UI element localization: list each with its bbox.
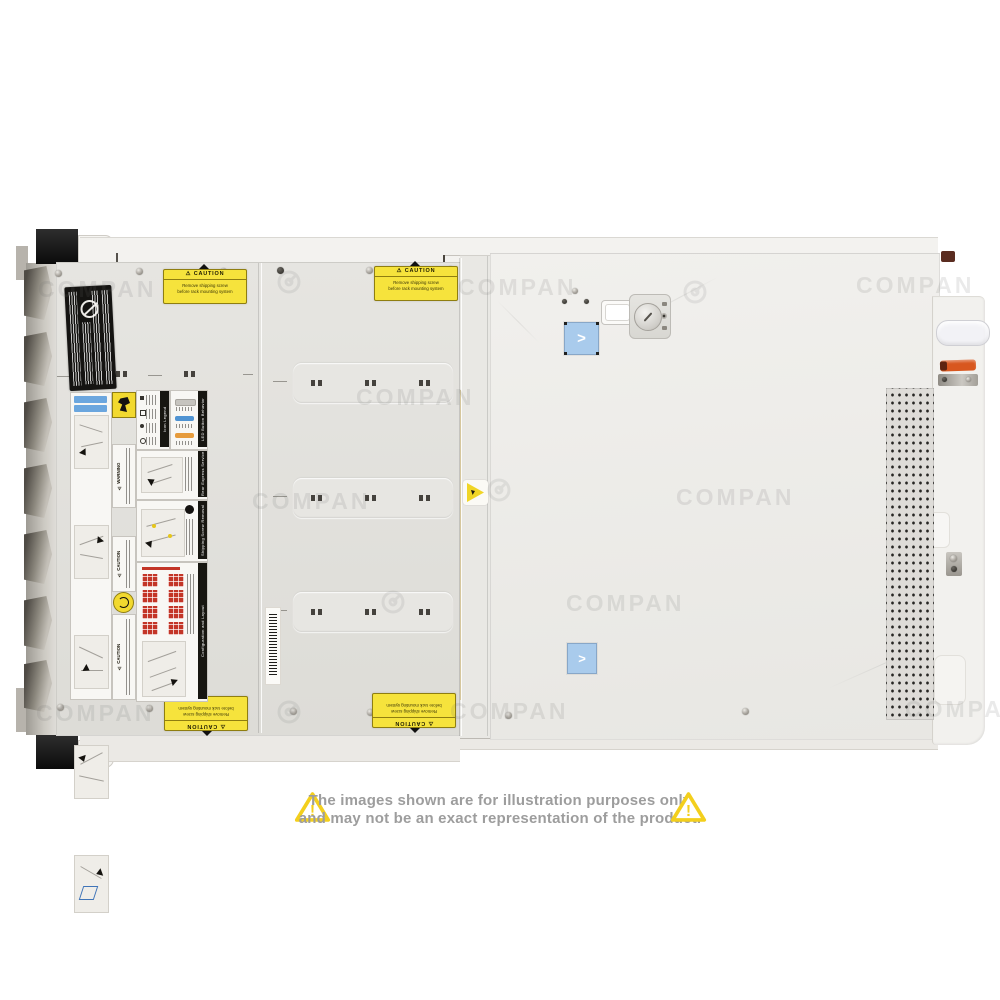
rear-express-service-tag-title: Rear Express Service Tag bbox=[198, 451, 207, 497]
drive-map-grid bbox=[168, 622, 184, 635]
microtext bbox=[146, 395, 156, 405]
microtext bbox=[186, 519, 193, 555]
microtext bbox=[176, 407, 193, 411]
caution-label-line2: before rack mounting system bbox=[164, 289, 246, 295]
rear-express-service-tag-label: Rear Express Service Tag bbox=[136, 450, 208, 500]
rivet bbox=[584, 299, 589, 304]
product-photo: ⚠ CAUTION Remove shipping screw before r… bbox=[0, 0, 1000, 1000]
icon-legend-title: Icon Legend bbox=[160, 391, 169, 447]
caution-label-heading: ⚠ CAUTION bbox=[373, 717, 455, 727]
icon-legend-label: Icon Legend bbox=[136, 390, 170, 450]
rotation-warning-sticker bbox=[113, 592, 134, 613]
label-title-chip bbox=[74, 396, 107, 403]
cover-seam-highlight bbox=[461, 258, 462, 736]
screw bbox=[277, 267, 284, 274]
step-diagram bbox=[74, 745, 109, 799]
step-diagram bbox=[74, 855, 109, 913]
warning-triangle-sticker bbox=[463, 480, 488, 505]
caution-label-line2: before rack mounting system bbox=[373, 702, 455, 708]
step-diagram bbox=[74, 415, 109, 469]
warning-text: ⚠ WARNING bbox=[114, 447, 124, 505]
label-arrow-icon bbox=[202, 731, 212, 736]
padlock-unlocked-icon bbox=[662, 302, 667, 306]
rivet bbox=[562, 299, 567, 304]
screw bbox=[366, 267, 373, 274]
clear-pull-handle bbox=[936, 320, 990, 346]
led-blue-pill bbox=[175, 416, 194, 421]
regulatory-microtext bbox=[102, 290, 114, 384]
cover-recess bbox=[293, 478, 453, 518]
microtext bbox=[126, 540, 132, 588]
vent-slot-pair bbox=[311, 380, 322, 386]
disclaimer-warning-triangle-icon: ! bbox=[670, 790, 707, 824]
disclaimer-line1: The images shown are for illustration pu… bbox=[0, 792, 1000, 810]
cover-recess bbox=[293, 592, 453, 632]
led-amber-pill bbox=[175, 433, 194, 438]
vent-slot-pair bbox=[365, 609, 376, 615]
led-off-pill bbox=[175, 399, 196, 406]
metal-bracket bbox=[938, 374, 978, 386]
warning-triangle-icon bbox=[467, 483, 484, 502]
vent-slot-pair bbox=[116, 371, 127, 377]
panel-tick bbox=[273, 496, 287, 497]
disclaimer-text: The images shown are for illustration pu… bbox=[0, 792, 1000, 828]
step-diagram bbox=[74, 525, 109, 579]
cover-seam-highlight bbox=[261, 263, 262, 733]
vent-slot-pair bbox=[184, 371, 195, 377]
regulatory-microtext bbox=[69, 292, 82, 386]
rail-instructions-label bbox=[70, 392, 112, 700]
drive-map-grid bbox=[168, 590, 184, 603]
panel-tick bbox=[148, 375, 162, 376]
caution-label-line1: Remove shipping screw bbox=[373, 708, 455, 714]
microtext bbox=[126, 619, 132, 695]
vent-slot-pair bbox=[311, 609, 322, 615]
caution-label-line2: before rack mounting system bbox=[375, 286, 457, 292]
vent-slot-pair bbox=[419, 609, 430, 615]
vent-slot-pair bbox=[311, 495, 322, 501]
chassis-bottom-wall-left bbox=[80, 734, 460, 762]
rivet bbox=[572, 288, 578, 294]
shipping-screw-removal-title: Shipping Screw Removal bbox=[198, 501, 207, 559]
exclamation-glyph: ! bbox=[686, 803, 691, 820]
caution-label-group: ⚠ CAUTION Remove shipping screw before r… bbox=[163, 269, 245, 302]
drive-map-grid bbox=[168, 574, 184, 587]
microtext bbox=[146, 423, 156, 433]
microtext bbox=[146, 437, 156, 445]
screw bbox=[742, 708, 749, 715]
screw bbox=[290, 708, 297, 715]
step-number-badge bbox=[185, 505, 194, 514]
regulatory-label bbox=[64, 285, 116, 391]
label-title-chip bbox=[74, 405, 107, 412]
panel-tick bbox=[273, 381, 287, 382]
config-header-mark bbox=[142, 567, 180, 570]
keyslot-icon bbox=[644, 312, 653, 322]
warning-strip: ⚠ WARNING ⚠ CAUTION ⚠ CAUTION bbox=[112, 392, 134, 698]
caution-label-group: ⚠ CAUTION Remove shipping screw before r… bbox=[374, 266, 456, 299]
caution-label: ⚠ CAUTION Remove shipping screw before r… bbox=[163, 269, 247, 304]
microtext bbox=[176, 424, 193, 428]
led-button-behavior-label: LED Button Behavior bbox=[170, 390, 208, 450]
caution-text: ⚠ CAUTION bbox=[114, 617, 124, 697]
chassis-iso-diagram bbox=[142, 641, 186, 697]
screw bbox=[136, 268, 143, 275]
drive-map-grid bbox=[142, 606, 158, 619]
led-button-behavior-title: LED Button Behavior bbox=[198, 391, 207, 447]
screw bbox=[55, 270, 62, 277]
flange-notch bbox=[934, 655, 966, 705]
latch-slider bbox=[605, 304, 630, 321]
configuration-and-layout-title: Configuration and Layout bbox=[198, 563, 207, 699]
orange-release-lever bbox=[940, 359, 976, 371]
cover-keylock bbox=[629, 294, 671, 339]
caution-label-heading: ⚠ CAUTION bbox=[164, 270, 246, 280]
caution-label-group: ⚠ CAUTION Remove shipping screw before r… bbox=[166, 698, 248, 731]
shipping-screw-removal-label: Shipping Screw Removal bbox=[136, 500, 208, 562]
caution-label: ⚠ CAUTION Remove shipping screw before r… bbox=[374, 266, 458, 301]
service-tag-diagram bbox=[141, 457, 183, 493]
microtext bbox=[176, 441, 193, 445]
screw bbox=[505, 712, 512, 719]
vent-slot-pair bbox=[365, 380, 376, 386]
cover-seam bbox=[258, 263, 259, 733]
drive-map-grid bbox=[142, 622, 158, 635]
caution-label: ⚠ CAUTION Remove shipping screw before r… bbox=[372, 693, 456, 728]
microtext bbox=[185, 457, 193, 491]
screw bbox=[57, 704, 64, 711]
caution-text-bar: ⚠ CAUTION bbox=[112, 536, 136, 592]
vent-slot-pair bbox=[419, 495, 430, 501]
chassis-top-wall-left bbox=[80, 237, 460, 265]
label-arrow-icon bbox=[199, 264, 209, 269]
caution-text-bar: ⚠ CAUTION bbox=[112, 614, 136, 700]
regulatory-microtext bbox=[82, 322, 93, 384]
padlock-locked-icon bbox=[662, 326, 667, 330]
legend-row-icon bbox=[140, 424, 144, 428]
chevron-right-icon: > bbox=[577, 330, 586, 347]
caution-label-heading: ⚠ CAUTION bbox=[375, 267, 457, 277]
drive-map-grid bbox=[142, 574, 158, 587]
keylock-detent bbox=[661, 313, 667, 319]
instruction-label-cluster: ⚠ WARNING ⚠ CAUTION ⚠ CAUTION Icon Legen… bbox=[68, 390, 208, 702]
chevron-right-icon: > bbox=[578, 651, 586, 666]
caution-label-group: ⚠ CAUTION Remove shipping screw before r… bbox=[374, 695, 456, 728]
cover-recess bbox=[293, 363, 453, 403]
caution-text: ⚠ CAUTION bbox=[114, 539, 124, 589]
label-arrow-icon bbox=[410, 261, 420, 266]
vent-slot-pair bbox=[365, 495, 376, 501]
rear-dark-tab bbox=[941, 251, 955, 262]
panel-tick bbox=[243, 374, 253, 375]
thumbscrew-block bbox=[946, 552, 962, 576]
keylock-dial bbox=[634, 303, 662, 331]
step-diagram bbox=[74, 635, 109, 689]
disclaimer-line2: and may not be an exact representation o… bbox=[0, 810, 1000, 828]
legend-row-icon bbox=[140, 396, 144, 400]
barcode-label bbox=[265, 607, 281, 685]
screw bbox=[146, 705, 153, 712]
cover-release-label: > bbox=[567, 643, 597, 674]
warning-pictogram-sticker bbox=[112, 392, 136, 418]
shipping-screw-diagram bbox=[141, 509, 185, 557]
microtext bbox=[126, 448, 132, 504]
microtext bbox=[146, 409, 156, 419]
cover-seam-gold bbox=[460, 390, 461, 700]
warning-text-bar: ⚠ WARNING bbox=[112, 444, 136, 508]
caution-label-heading: ⚠ CAUTION bbox=[165, 720, 247, 730]
caution-label-line2: before rack mounting system bbox=[165, 705, 247, 711]
microtext bbox=[187, 574, 194, 634]
label-arrow-icon bbox=[410, 728, 420, 733]
lever-tip bbox=[940, 361, 947, 370]
drive-map-grid bbox=[142, 590, 158, 603]
caution-label-line1: Remove shipping screw bbox=[165, 711, 247, 717]
barcode bbox=[269, 613, 277, 675]
configuration-and-layout-label: Configuration and Layout bbox=[136, 562, 208, 702]
rear-vent-grille bbox=[886, 388, 934, 720]
cover-release-label: > bbox=[564, 322, 599, 355]
vent-slot-pair bbox=[419, 380, 430, 386]
rack-ear-bottom-left bbox=[36, 735, 78, 769]
drive-map-grid bbox=[168, 606, 184, 619]
rack-ear-top-left bbox=[36, 229, 78, 264]
